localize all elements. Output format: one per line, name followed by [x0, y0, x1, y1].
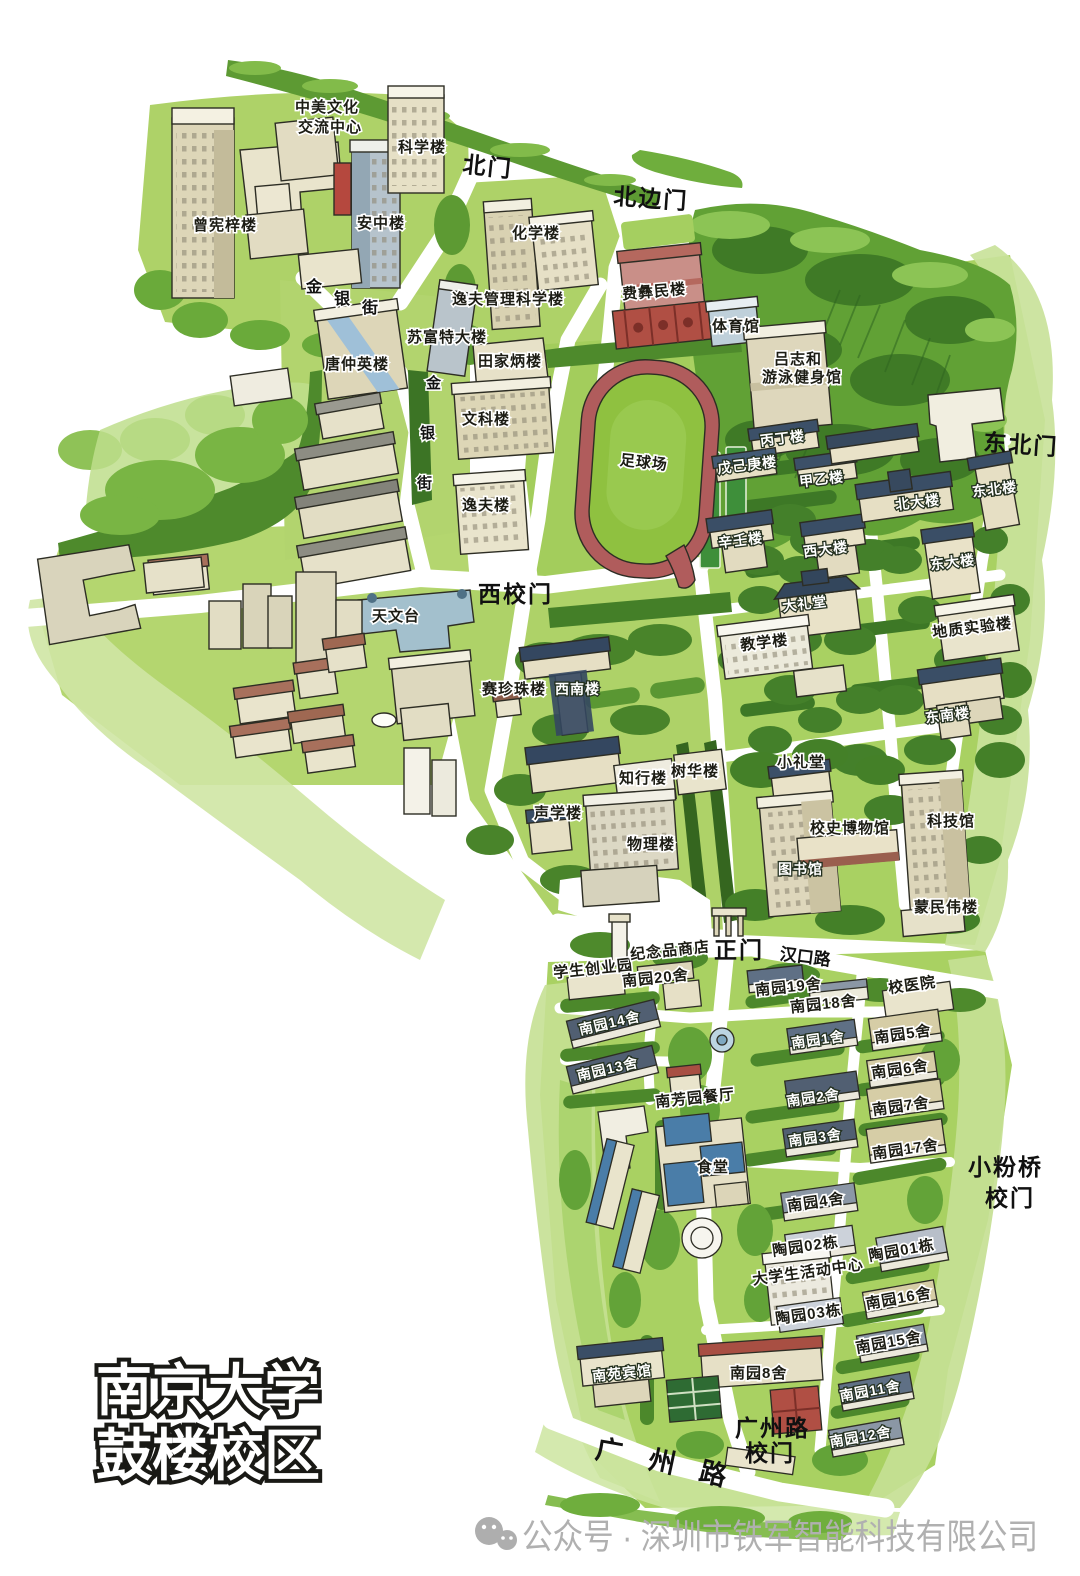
svg-text:金: 金 — [425, 374, 442, 392]
svg-text:小粉桥: 小粉桥 — [968, 1154, 1043, 1180]
svg-text:物理楼: 物理楼 — [627, 835, 675, 853]
svg-text:逸夫管理科学楼: 逸夫管理科学楼 — [452, 290, 564, 308]
svg-text:图书馆: 图书馆 — [778, 861, 823, 877]
svg-text:校门: 校门 — [745, 1440, 795, 1466]
svg-text:树华楼: 树华楼 — [671, 762, 719, 780]
svg-text:苏富特大楼: 苏富特大楼 — [407, 328, 487, 346]
svg-text:北门: 北门 — [461, 151, 513, 182]
svg-text:金: 金 — [305, 277, 323, 296]
svg-text:化学楼: 化学楼 — [512, 224, 560, 242]
svg-text:科技馆: 科技馆 — [927, 812, 975, 830]
svg-text:天文台: 天文台 — [372, 607, 420, 625]
svg-text:北边门: 北边门 — [613, 183, 690, 214]
svg-text:广州路: 广州路 — [735, 1415, 810, 1441]
svg-text:西南楼: 西南楼 — [555, 681, 600, 697]
svg-text:街: 街 — [361, 298, 378, 317]
svg-text:西校门: 西校门 — [478, 581, 553, 607]
svg-text:田家炳楼: 田家炳楼 — [478, 352, 542, 370]
svg-text:东北门: 东北门 — [983, 429, 1060, 460]
svg-text:体育馆: 体育馆 — [712, 317, 760, 335]
svg-text:街: 街 — [416, 474, 432, 492]
svg-text:南园8舍: 南园8舍 — [730, 1364, 787, 1382]
svg-text:逸夫楼: 逸夫楼 — [462, 496, 510, 514]
svg-text:银: 银 — [334, 289, 351, 308]
svg-text:正门: 正门 — [714, 937, 764, 963]
svg-text:科学楼: 科学楼 — [398, 138, 446, 156]
svg-text:校门: 校门 — [985, 1185, 1035, 1211]
svg-text:校史博物馆: 校史博物馆 — [810, 819, 890, 837]
svg-text:广: 广 — [593, 1434, 625, 1468]
svg-text:食堂: 食堂 — [697, 1158, 729, 1176]
svg-text:中美文化: 中美文化 — [295, 98, 359, 116]
svg-text:文科楼: 文科楼 — [462, 410, 510, 428]
svg-text:赛珍珠楼: 赛珍珠楼 — [481, 680, 546, 698]
svg-text:曾宪梓楼: 曾宪梓楼 — [193, 216, 257, 234]
svg-text:游泳健身馆: 游泳健身馆 — [762, 368, 842, 386]
svg-text:声学楼: 声学楼 — [533, 804, 582, 822]
svg-text:鼓楼校区: 鼓楼校区 — [96, 1424, 320, 1487]
svg-text:知行楼: 知行楼 — [619, 769, 667, 787]
svg-text:安中楼: 安中楼 — [357, 214, 405, 232]
svg-text:小礼堂: 小礼堂 — [777, 753, 825, 771]
svg-text:吕志和: 吕志和 — [774, 350, 822, 368]
svg-text:交流中心: 交流中心 — [298, 118, 362, 136]
svg-text:蒙民伟楼: 蒙民伟楼 — [914, 898, 978, 916]
svg-text:公众号 · 深圳市铁军智能科技有限公司: 公众号 · 深圳市铁军智能科技有限公司 — [522, 1518, 1038, 1557]
svg-text:南京大学: 南京大学 — [96, 1359, 320, 1422]
svg-text:唐仲英楼: 唐仲英楼 — [325, 355, 389, 373]
svg-text:银: 银 — [420, 424, 436, 442]
